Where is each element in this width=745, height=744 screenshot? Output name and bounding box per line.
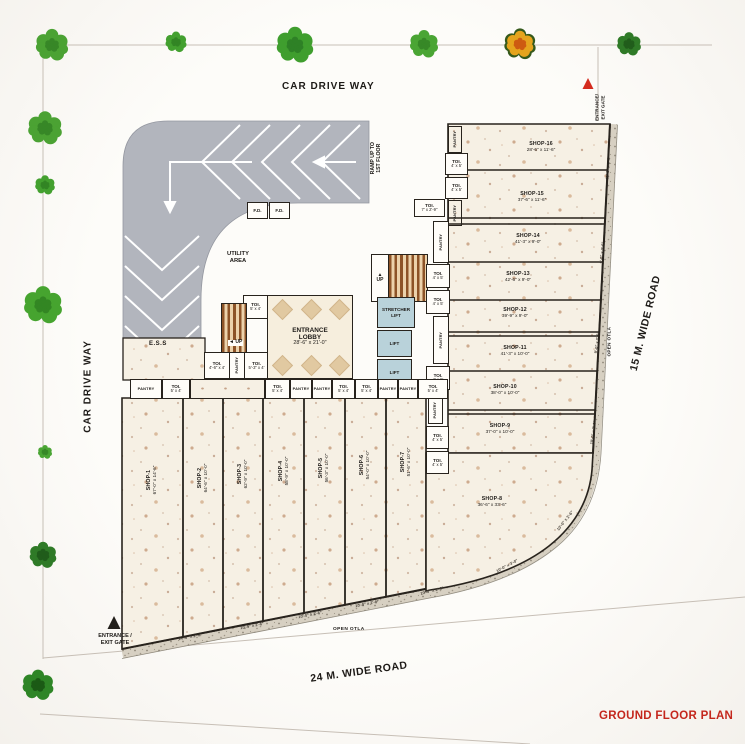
shop-14: SHOP-1441'-3" x 9'-0" [492,231,564,247]
staircase-top: ▲ UP [371,254,428,302]
shop-4: SHOP-458'-9" x 10'-0" [277,436,291,506]
shop-1: SHOP-167'-0" x 14'-6" [145,445,159,515]
toilet-room: TOI.4' x 5' [426,264,450,288]
pantry-room: PANTRY [229,352,245,379]
pantry-room: PANTRY [312,379,332,399]
left-shops-floor [122,398,426,649]
pantry-room: PANTRY [448,200,462,226]
pantry-room: PANTRY [378,379,398,399]
toilet-room: TOI.4' x 5' [445,177,468,199]
toilet-room: TOI.5'-3" x 4' [244,352,269,379]
up-label-left: ◄ UP [228,340,243,346]
right-shops-floor [448,124,610,453]
toilet-room: TOI.5' x 4' [332,379,355,399]
shop-7: SHOP-751'-6" x 10'-0" [399,427,413,497]
tree-icon [410,30,438,58]
tree-icon [617,32,641,55]
plan-title: GROUND FLOOR PLAN [599,710,733,723]
open-otla-bottom-label: OPEN OTLA [333,627,365,633]
road-label-top: CAR DRIVE WAY [282,81,375,93]
stair-treads [388,255,427,301]
pantry-room: PANTRY [398,379,418,399]
shop-3: SHOP-362'-9" x 10'-0" [236,439,250,509]
toilet-room: TOI.4' x 5' [445,153,468,175]
toilet-room: TOI.4' x 5' [426,426,449,449]
pantry-room: PANTRY [130,379,162,399]
shop-8: SHOP-836'-6" x 33'-6" [456,494,528,510]
shop-front-strip [190,379,265,399]
fd-box: F.D. [247,202,268,219]
utility-area-label: UTILITYAREA [218,251,258,265]
tree-autumn-icon [504,28,535,59]
entrance-gate-top-label: ENTRANCE/EXIT GATE [595,86,606,130]
pantry-room: PANTRY [433,221,449,263]
pantry-room: PANTRY [290,379,312,399]
pantry-room: PANTRY [433,316,449,364]
ground-floor-plan: CAR DRIVE WAY CAR DRIVE WAY 15 M. WIDE R… [0,0,745,744]
shop-15: SHOP-1537'-6" x 11'-6" [496,189,568,205]
left-arrow-icon: ◄ [229,339,234,345]
shop-6: SHOP-654'-0" x 10'-0" [358,430,372,500]
toilet-room: TOI.4'-6" x 4' [204,352,230,379]
tree-icon [38,445,52,459]
ramp-label: RAMP UP TO1ST FLOOR [370,130,382,186]
lift: LIFT [377,330,412,357]
toilet-room: TOI.4' x 5' [426,290,450,314]
staircase-left [221,303,247,359]
toilet-room: TOI.5' x 4' [355,379,378,399]
entrance-gate-bottom-label: ENTRANCE /EXIT GATE [88,633,142,646]
shop-5: SHOP-556'-3" x 10'-0" [317,433,331,503]
toilet-room: TOI.7' x 2'-9" [414,199,445,217]
entrance-gate-top-arrow-icon [583,78,594,89]
open-otla-right-label: OPEN OTLA [606,321,611,363]
shop-2: SHOP-264'-6" x 10'-0" [196,443,210,513]
fd-box: F.D. [269,202,290,219]
shop-12: SHOP-1239'-9" x 9'-0" [479,305,551,321]
shop-13: SHOP-1342'-6" x 9'-0" [482,269,554,285]
tree-icon [24,286,62,323]
tree-icon [28,111,62,144]
tree-icon [30,542,57,568]
shop-16: SHOP-1628'-6" x 11'-6" [505,139,577,155]
tree-icon [35,175,55,194]
shop-10: SHOP-1038'-0" x 10'-0" [469,382,541,398]
shop-9: SHOP-937'-0" x 10'-0" [464,421,536,437]
tree-icon [36,29,68,61]
toilet-room: TOI.5' x 4' [162,379,190,399]
ess-label: E.S.S [149,341,167,348]
tree-icon [166,32,187,53]
entrance-lobby: ENTRANCE LOBBY 28'-6" x 21'-0" [267,295,353,379]
stretcher-lift: STRETCHERLIFT [377,297,415,328]
toilet-room: TOI.4' x 5' [426,451,449,474]
toilet-room: TOI.5' x 4' [418,379,448,399]
pantry-room: PANTRY [448,126,462,153]
tree-icon [277,27,313,63]
road-label-left: CAR DRIVE WAY [82,347,94,433]
shop-11: SHOP-1141'-3" x 10'-0" [479,343,551,359]
entrance-gate-bottom-arrow-icon [108,616,121,629]
pantry-room: PANTRY [428,396,443,424]
toilet-room: TOI.5' x 4' [265,379,290,399]
tree-icon [23,670,54,700]
